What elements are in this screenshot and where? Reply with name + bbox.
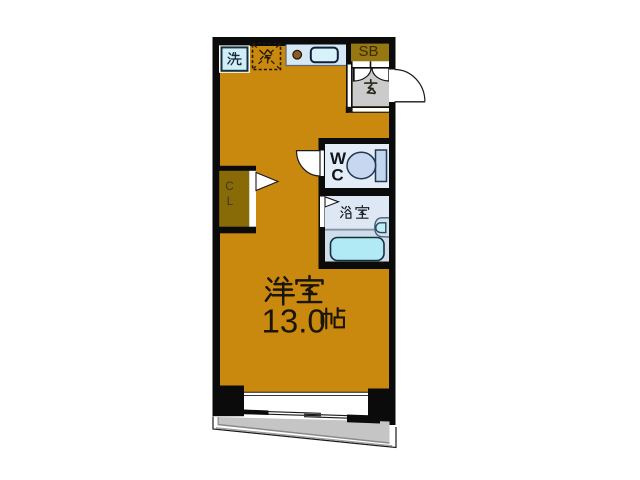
svg-text:C: C <box>225 181 233 193</box>
svg-text:SB: SB <box>358 43 378 60</box>
svg-text:C: C <box>331 166 343 185</box>
svg-text:L: L <box>227 196 234 208</box>
svg-text:13.0: 13.0 <box>262 302 326 339</box>
